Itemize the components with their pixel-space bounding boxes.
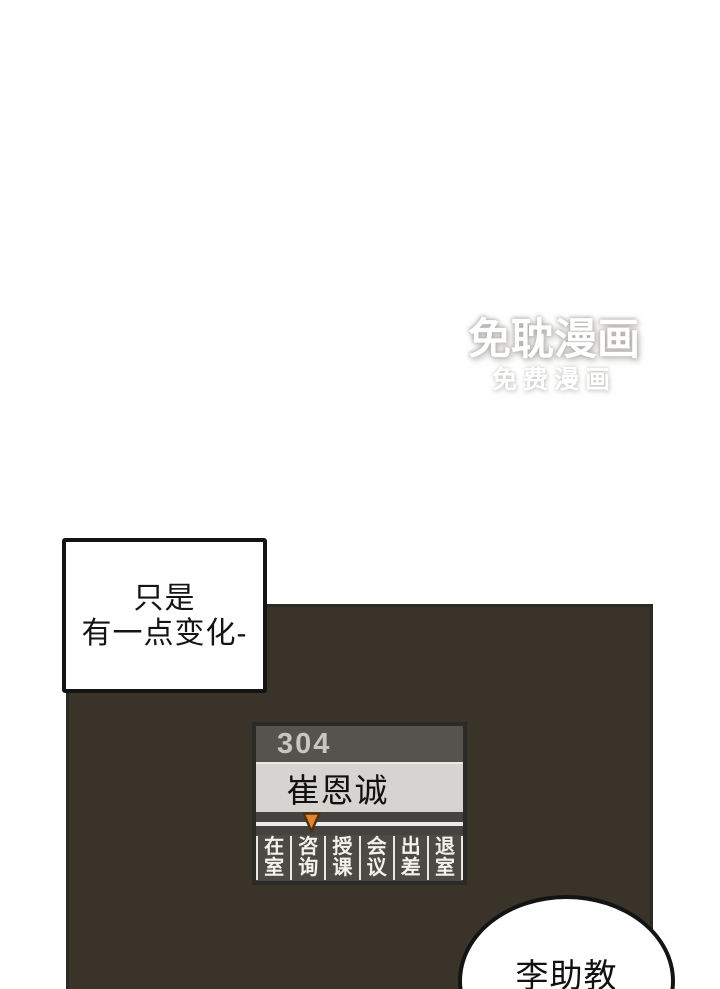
watermark-subtitle: 免费漫画 [454,367,654,395]
reply-text: 李助教 [462,949,671,989]
narration-line-1: 只是 [134,581,196,616]
status-indicator-track [256,812,463,835]
narration-bubble: 只是 有一点变化- [62,538,267,693]
status-option-teaching: 授 课 [324,836,358,880]
status-option-in-room: 在 室 [256,836,290,880]
watermark: 免耽漫画 免费漫画 [454,317,654,395]
comic-page: 免耽漫画 免费漫画 只是 有一点变化- 304 崔恩诚 在 室 咨 询 授 [0,0,720,989]
room-number: 304 [256,726,463,762]
status-option-left-room: 退 室 [427,836,463,880]
narration-line-2: 有一点变化- [82,616,248,651]
status-options-row: 在 室 咨 询 授 课 会 议 出 差 退 室 [256,835,463,881]
door-nameplate: 304 崔恩诚 在 室 咨 询 授 课 会 议 [252,722,467,885]
status-option-consulting: 咨 询 [290,836,324,880]
status-option-meeting: 会 议 [359,836,393,880]
status-slider-line [256,822,463,826]
occupant-name: 崔恩诚 [256,762,463,812]
status-arrow-down-icon [302,812,321,833]
watermark-title: 免耽漫画 [454,317,654,364]
status-option-business-trip: 出 差 [393,836,427,880]
